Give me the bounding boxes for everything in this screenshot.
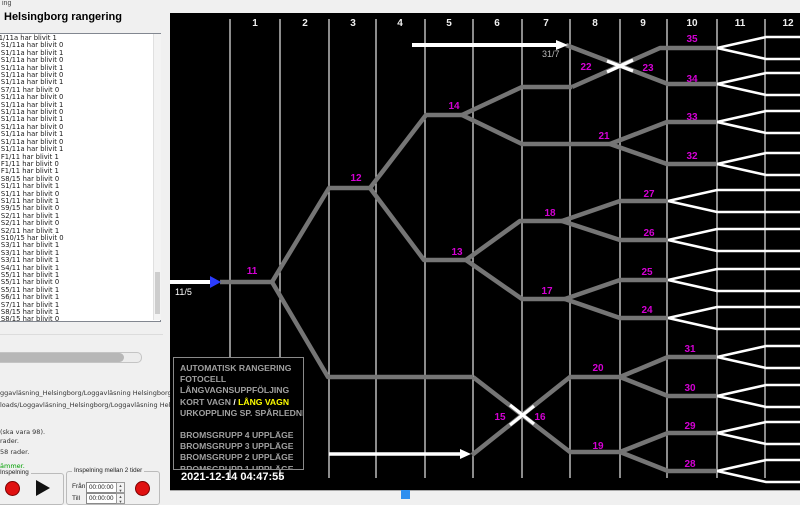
column-number: 8 (592, 18, 598, 29)
switch-label-20: 20 (592, 363, 604, 374)
switch-label-31: 31 (684, 344, 696, 355)
track-segment (620, 357, 717, 377)
switch-label-33: 33 (686, 112, 698, 123)
legend-line: BROMSGRUPP 4 UPPLÄGE (180, 430, 303, 441)
classification-track (717, 346, 800, 357)
legend-line: BROMSGRUPP 1 UPPLÄGE (180, 464, 303, 470)
separator (0, 334, 163, 335)
timeline-slider-track[interactable] (170, 490, 800, 500)
track-segment (620, 377, 717, 396)
from-time-field[interactable]: 00:00:00 (86, 482, 117, 493)
classification-track (717, 164, 800, 175)
switch-label-25: 25 (641, 267, 653, 278)
legend-line: KORT VAGN / LÅNG VAGN (180, 397, 303, 408)
classification-track (668, 269, 800, 280)
page-title: Helsingborg rangering (4, 11, 122, 23)
switch-label-30: 30 (684, 383, 696, 394)
classification-track (668, 201, 800, 212)
track-segment (610, 144, 717, 164)
legend-line: BROMSGRUPP 3 UPPLÄGE (180, 441, 303, 452)
switch-label-12: 12 (350, 173, 362, 184)
classification-track (668, 318, 800, 329)
track-segment (562, 201, 668, 221)
classification-track (668, 240, 800, 251)
info-line-1: (ska vara 98). (0, 428, 170, 436)
switch-label-35: 35 (686, 34, 698, 45)
legend-line: BROMSGRUPP 2 UPPLÄGE (180, 452, 303, 463)
switch-label-17: 17 (541, 286, 553, 297)
info-line-2: rader. (0, 437, 170, 445)
classification-track (717, 111, 800, 122)
column-number: 3 (350, 18, 356, 29)
column-number: 9 (640, 18, 646, 29)
switch-label-16: 16 (534, 412, 546, 423)
switch-label-21: 21 (598, 131, 610, 142)
track-segment (462, 87, 572, 115)
classification-track (717, 396, 800, 407)
classification-track (717, 73, 800, 84)
horizontal-slider[interactable] (0, 352, 142, 363)
classification-track (717, 422, 800, 433)
classification-track (668, 229, 800, 240)
legend-line: URKOPPLING SP. SPÅRLEDNING (180, 408, 303, 419)
recording-between-label: Inspelning mellan 2 tider (72, 467, 144, 474)
column-number: 4 (397, 18, 403, 29)
switch-label-11: 11 (247, 266, 258, 277)
track-segment (620, 452, 717, 471)
legend-box: AUTOMATISK RANGERINGFOTOCELLLÅNGVAGNSUPP… (173, 357, 304, 470)
wagon-arrow-bottom-head (460, 449, 471, 459)
entry-arrow-label: 11/5 (175, 287, 192, 297)
track-segment (370, 115, 462, 188)
column-number: 6 (494, 18, 500, 29)
switch-label-19: 19 (592, 441, 604, 452)
switch-label-15: 15 (494, 412, 506, 423)
window-title: ing (2, 0, 11, 8)
info-line-3: 58 rader. (0, 448, 170, 456)
to-time-spinner[interactable]: ▲▼ (116, 493, 125, 504)
classification-track (717, 37, 800, 48)
switch-label-28: 28 (684, 459, 696, 470)
classification-track (717, 471, 800, 482)
legend-line: LÅNGVAGNSUPPFÖLJING (180, 385, 303, 396)
column-number: 2 (302, 18, 308, 29)
legend-line: AUTOMATISK RANGERING (180, 363, 303, 374)
column-number: 7 (543, 18, 549, 29)
from-time-spinner[interactable]: ▲▼ (116, 482, 125, 493)
classification-track (717, 433, 800, 444)
classification-track (717, 357, 800, 368)
app-window: { "window": { "title": "ing" }, "left_pa… (0, 0, 800, 500)
switch-label-18: 18 (544, 208, 556, 219)
classification-track (717, 84, 800, 95)
switch-label-14: 14 (448, 101, 460, 112)
classification-track (717, 122, 800, 133)
column-number: 1 (252, 18, 258, 29)
switch-label-23: 23 (642, 63, 654, 74)
switch-label-34: 34 (686, 74, 698, 85)
legend-line: FOTOCELL (180, 374, 303, 385)
playback-timestamp: 2021-12-14 04:47:55 (181, 471, 284, 483)
classification-track (668, 280, 800, 291)
record-between-button[interactable] (135, 481, 150, 496)
wagon-arrow-top-label: 31/7 (542, 49, 560, 59)
scrollbar-thumb[interactable] (155, 272, 160, 314)
log-list[interactable]: 752000: S1/11a har blivit 11.752000: S1/… (0, 33, 161, 322)
play-button[interactable] (36, 480, 50, 496)
to-time-field[interactable]: 00:00:00 (86, 493, 117, 504)
column-number: 11 (735, 18, 746, 29)
recording-group-label: Inspelning (0, 469, 31, 476)
column-number: 5 (446, 18, 452, 29)
log-list-scrollbar[interactable] (153, 34, 161, 320)
classification-track (668, 307, 800, 318)
classification-track (717, 153, 800, 164)
record-button[interactable] (5, 481, 20, 496)
track-segment (272, 188, 370, 282)
classification-track (717, 460, 800, 471)
track-segment (610, 122, 717, 144)
switch-label-26: 26 (643, 228, 655, 239)
log-line[interactable]: 1.081000: S8/15 har blivit 0 (0, 316, 160, 322)
column-number: 10 (686, 18, 698, 29)
from-label: Från (72, 483, 85, 490)
horizontal-slider-thumb[interactable] (0, 353, 124, 362)
switch-label-29: 29 (684, 421, 696, 432)
entry-arrow-head (210, 276, 221, 288)
switch-label-13: 13 (451, 247, 463, 258)
video-path-text: loads/Loggavläsning_Helsingborg/Loggavlä… (0, 401, 170, 409)
log-path-text: ggavläsning_Helsingborg/Loggavläsning He… (0, 389, 170, 397)
switch-label-27: 27 (643, 189, 655, 200)
classification-track (717, 48, 800, 59)
classification-track (717, 385, 800, 396)
to-label: Till (72, 495, 80, 502)
switch-label-24: 24 (641, 305, 653, 316)
track-segment (466, 221, 562, 260)
classification-track (668, 190, 800, 201)
timeline-slider-thumb[interactable] (401, 490, 410, 499)
track-segment (620, 433, 717, 452)
column-number: 12 (782, 18, 794, 29)
switch-label-22: 22 (580, 62, 592, 73)
track-segment (565, 280, 668, 299)
switch-label-32: 32 (686, 151, 698, 162)
track-segment (462, 115, 610, 144)
